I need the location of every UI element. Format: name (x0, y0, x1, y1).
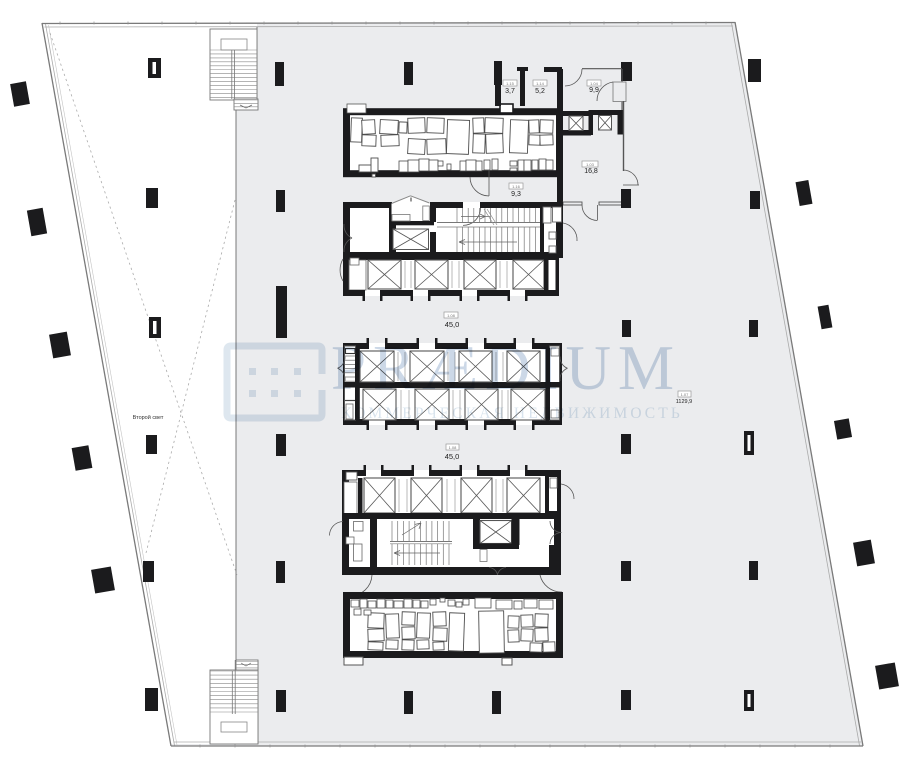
svg-text:45,0: 45,0 (445, 320, 460, 329)
svg-text:1.08: 1.08 (449, 445, 458, 450)
svg-text:Второй свет: Второй свет (133, 414, 164, 421)
svg-text:3,7: 3,7 (505, 88, 515, 95)
svg-text:1.03: 1.03 (586, 162, 595, 167)
svg-text:1.07: 1.07 (681, 392, 690, 397)
svg-text:1.15: 1.15 (506, 81, 515, 86)
svg-text:1129,9: 1129,9 (676, 399, 692, 405)
svg-text:PRÆDIUM: PRÆDIUM (331, 333, 681, 403)
svg-text:1.08: 1.08 (447, 313, 456, 318)
svg-text:КОММЕРЧЕСКАЯ НЕДВИЖИМОСТЬ: КОММЕРЧЕСКАЯ НЕДВИЖИМОСТЬ (341, 405, 683, 422)
svg-text:9,3: 9,3 (511, 191, 521, 198)
svg-text:45,0: 45,0 (445, 452, 460, 461)
svg-text:1.14: 1.14 (536, 81, 545, 86)
svg-text:5,2: 5,2 (535, 88, 545, 95)
svg-text:16,8: 16,8 (584, 168, 598, 175)
svg-text:1.04: 1.04 (590, 81, 599, 86)
svg-text:1.16: 1.16 (512, 184, 521, 189)
svg-text:9,9: 9,9 (589, 87, 599, 94)
